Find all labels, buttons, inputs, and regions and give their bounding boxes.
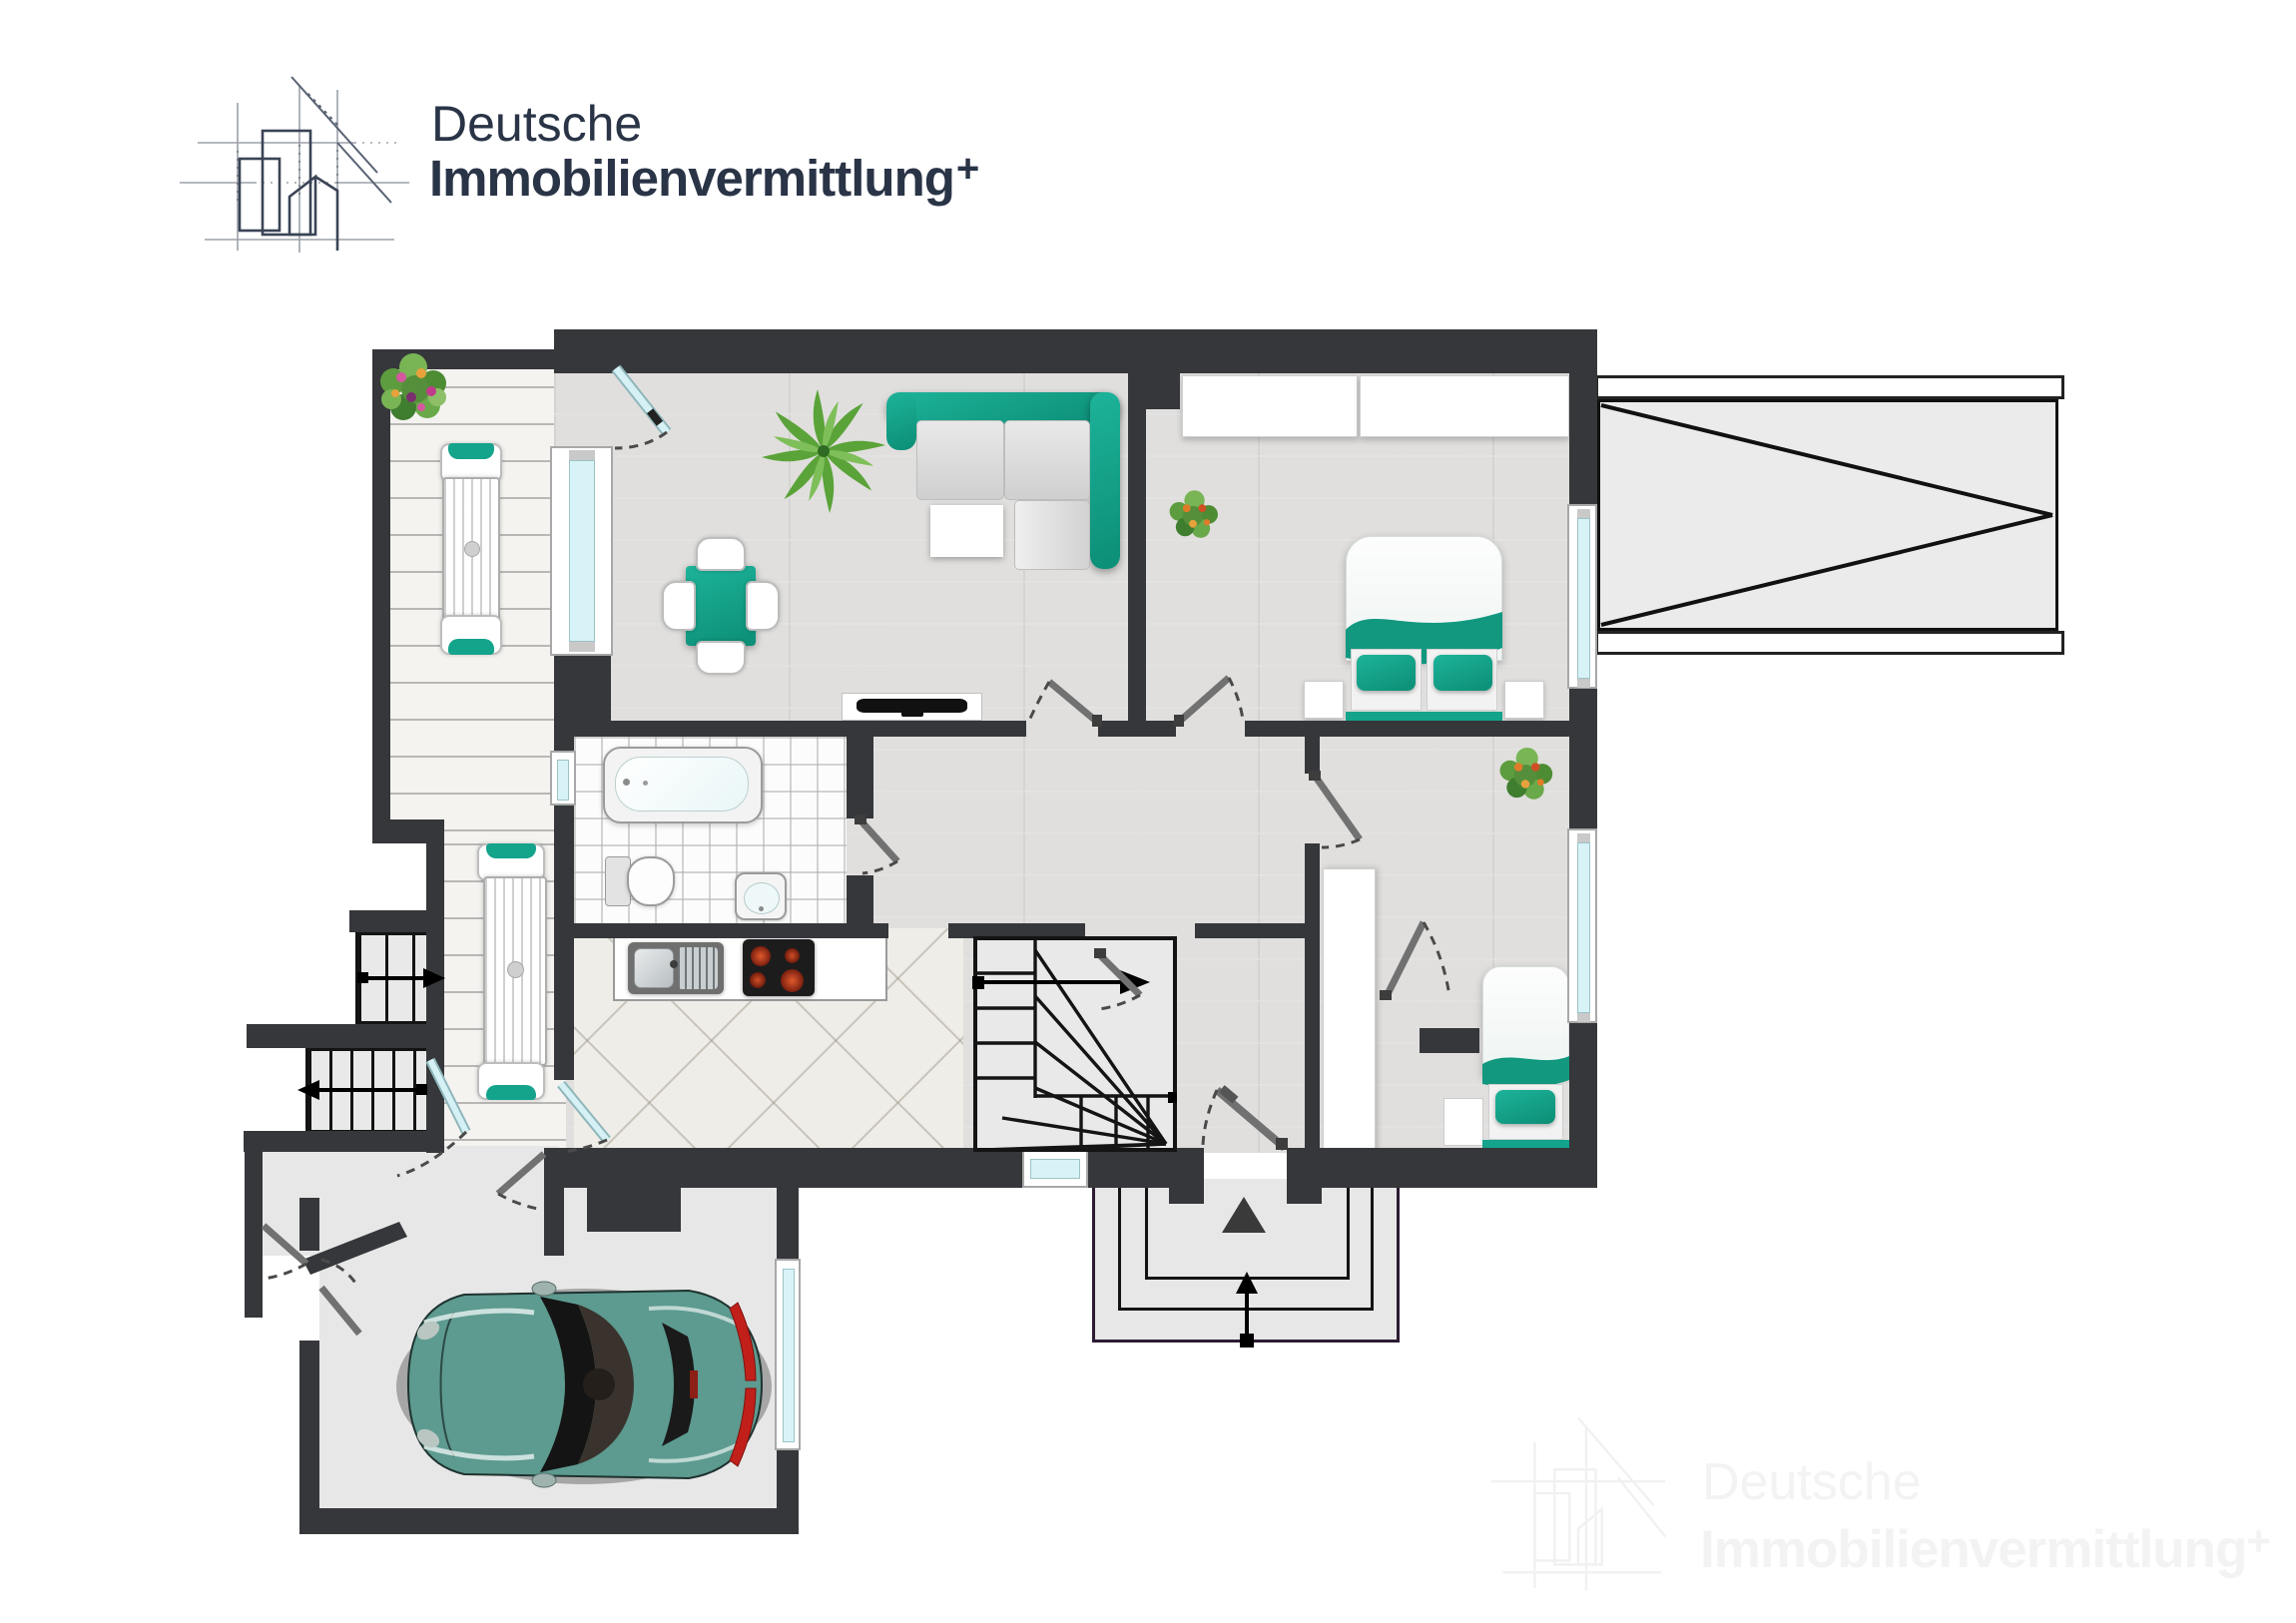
door-bedroom1 bbox=[1174, 678, 1243, 727]
wall-angled bbox=[302, 1222, 407, 1275]
door-bedroom2-lower bbox=[1380, 922, 1449, 1000]
glass-door-terrace bbox=[615, 368, 667, 448]
entry-arrow-icon bbox=[1236, 1272, 1258, 1348]
flower-plant-icon bbox=[380, 353, 446, 420]
watermark-line2: Immobilienvermittlung+ bbox=[1700, 1517, 2270, 1580]
watermark-line1: Deutsche bbox=[1702, 1452, 1922, 1512]
palm-plant-icon bbox=[756, 383, 890, 518]
plant-icon-bedroom1 bbox=[1170, 490, 1218, 538]
door-bathroom bbox=[855, 814, 897, 873]
entry-direction-triangle bbox=[1222, 1197, 1266, 1233]
door-garage bbox=[321, 1260, 359, 1334]
staircase-icon bbox=[972, 938, 1177, 1150]
car-icon bbox=[396, 1282, 772, 1487]
watermark: Deutsche Immobilienvermittlung+ bbox=[1467, 1397, 2186, 1617]
glass-door-kitchen bbox=[561, 1084, 607, 1152]
door-bedroom2 bbox=[1309, 771, 1360, 847]
plan-linework bbox=[0, 0, 2296, 1623]
door-entrance bbox=[1203, 1085, 1288, 1150]
exterior-step-arrows bbox=[297, 968, 445, 1100]
glass-door-corridor bbox=[397, 1060, 466, 1176]
watermark-icon bbox=[1467, 1377, 1697, 1617]
door-living bbox=[1029, 682, 1102, 727]
plant-icon-bedroom2 bbox=[1500, 748, 1553, 800]
door-vestibule bbox=[264, 1154, 544, 1279]
deck-bracing-lines bbox=[1601, 405, 2052, 625]
floorplan-page: Deutsche Immobilienvermittlung+ bbox=[0, 0, 2296, 1623]
